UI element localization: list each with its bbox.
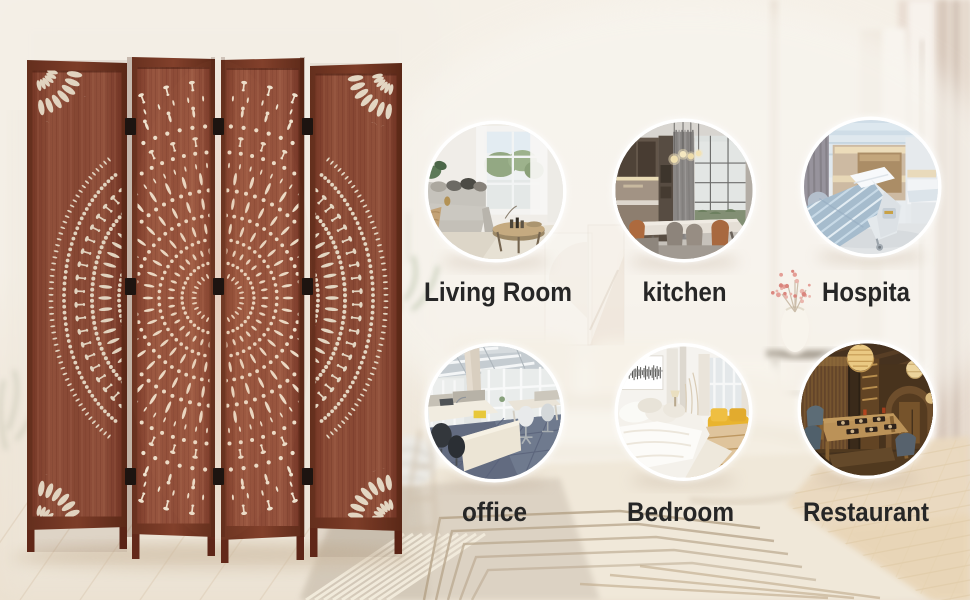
svg-text:Hospita: Hospita — [822, 277, 911, 307]
svg-text:Restaurant: Restaurant — [803, 497, 929, 527]
svg-text:Living Room: Living Room — [424, 277, 572, 307]
svg-text:kitchen: kitchen — [643, 277, 727, 307]
svg-text:office: office — [462, 497, 527, 527]
svg-text:Bedroom: Bedroom — [627, 497, 734, 527]
